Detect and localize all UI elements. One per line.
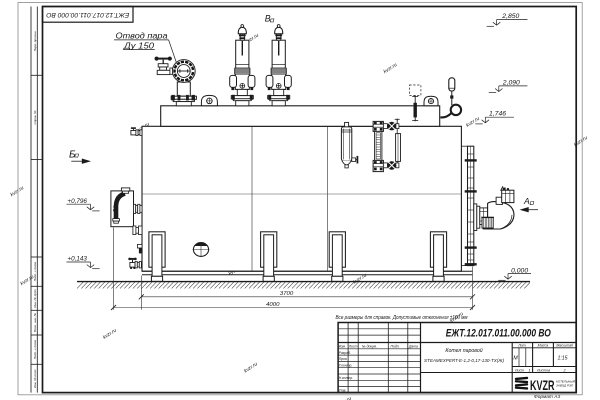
svg-text:Разраб.: Разраб. bbox=[339, 351, 351, 355]
svg-text:Лист: Лист bbox=[514, 369, 524, 373]
svg-text:Подп.: Подп. bbox=[391, 344, 400, 348]
svg-text:ЕЖТ.12.017.011.00.000 ВО: ЕЖТ.12.017.011.00.000 ВО bbox=[446, 328, 551, 340]
svg-text:ЕЖТ.12.017.011.00.000 ВО: ЕЖТ.12.017.011.00.000 ВО bbox=[46, 11, 129, 18]
svg-text:1,746: 1,746 bbox=[489, 112, 507, 118]
svg-text:Т.контр.: Т.контр. bbox=[339, 364, 353, 368]
svg-text:+0,796: +0,796 bbox=[67, 199, 87, 205]
svg-text:STEAMEXPERT-Е-1,2-0,17-130-ТХ(: STEAMEXPERT-Е-1,2-0,17-130-ТХ(Ж) bbox=[424, 358, 505, 363]
svg-text:Масштаб: Масштаб bbox=[556, 344, 574, 348]
svg-text:Формат А3: Формат А3 bbox=[534, 394, 561, 400]
svg-text:0,000: 0,000 bbox=[511, 269, 529, 275]
svg-text:4000: 4000 bbox=[266, 302, 280, 308]
svg-text:Изм.: Изм. bbox=[339, 344, 346, 348]
svg-text:В: В bbox=[265, 13, 271, 23]
svg-text:Ду 150: Ду 150 bbox=[123, 40, 155, 50]
svg-text:Пров.: Пров. bbox=[339, 357, 348, 361]
svg-text:Лист: Лист bbox=[348, 344, 358, 348]
svg-text:Инв. № подл.: Инв. № подл. bbox=[33, 369, 37, 388]
svg-text:ЗАВОД РЭП: ЗАВОД РЭП bbox=[556, 384, 574, 388]
svg-text:Взам. инв. №: Взам. инв. № bbox=[33, 312, 37, 332]
svg-text:Дата: Дата bbox=[408, 344, 418, 348]
svg-text:1: 1 bbox=[529, 369, 531, 373]
svg-text:Подп. и дата: Подп. и дата bbox=[33, 262, 37, 282]
svg-text:А: А bbox=[523, 196, 530, 206]
svg-text:Н.контр.: Н.контр. bbox=[339, 376, 353, 380]
svg-text:KVZR: KVZR bbox=[530, 378, 555, 393]
svg-text:Подп. и дата: Подп. и дата bbox=[33, 340, 37, 360]
svg-text:1:15: 1:15 bbox=[557, 355, 567, 361]
svg-text:Инв. № дубл.: Инв. № дубл. bbox=[33, 289, 37, 308]
svg-text:Отвод пара: Отвод пара bbox=[116, 31, 168, 41]
svg-text:Справ. №: Справ. № bbox=[33, 110, 37, 125]
svg-text:Все размеры для справок. Допус: Все размеры для справок. Допустимые откл… bbox=[336, 315, 469, 321]
svg-text:№ докум.: № докум. bbox=[362, 344, 377, 348]
svg-text:Котел паровой: Котел паровой bbox=[445, 347, 482, 354]
svg-text:2,850: 2,850 bbox=[501, 14, 520, 20]
svg-text:М: М bbox=[513, 355, 518, 361]
svg-text:3700: 3700 bbox=[280, 291, 294, 297]
svg-text:2,090: 2,090 bbox=[502, 80, 521, 86]
svg-text:Лит.: Лит. bbox=[517, 344, 526, 348]
svg-text:+0,143: +0,143 bbox=[67, 257, 87, 263]
svg-text:Утв.: Утв. bbox=[339, 388, 347, 392]
svg-text:Масса: Масса bbox=[538, 344, 549, 348]
svg-text:2: 2 bbox=[563, 369, 566, 373]
svg-text:Перв. примен.: Перв. примен. bbox=[33, 31, 37, 52]
svg-text:Листов: Листов bbox=[536, 369, 550, 373]
